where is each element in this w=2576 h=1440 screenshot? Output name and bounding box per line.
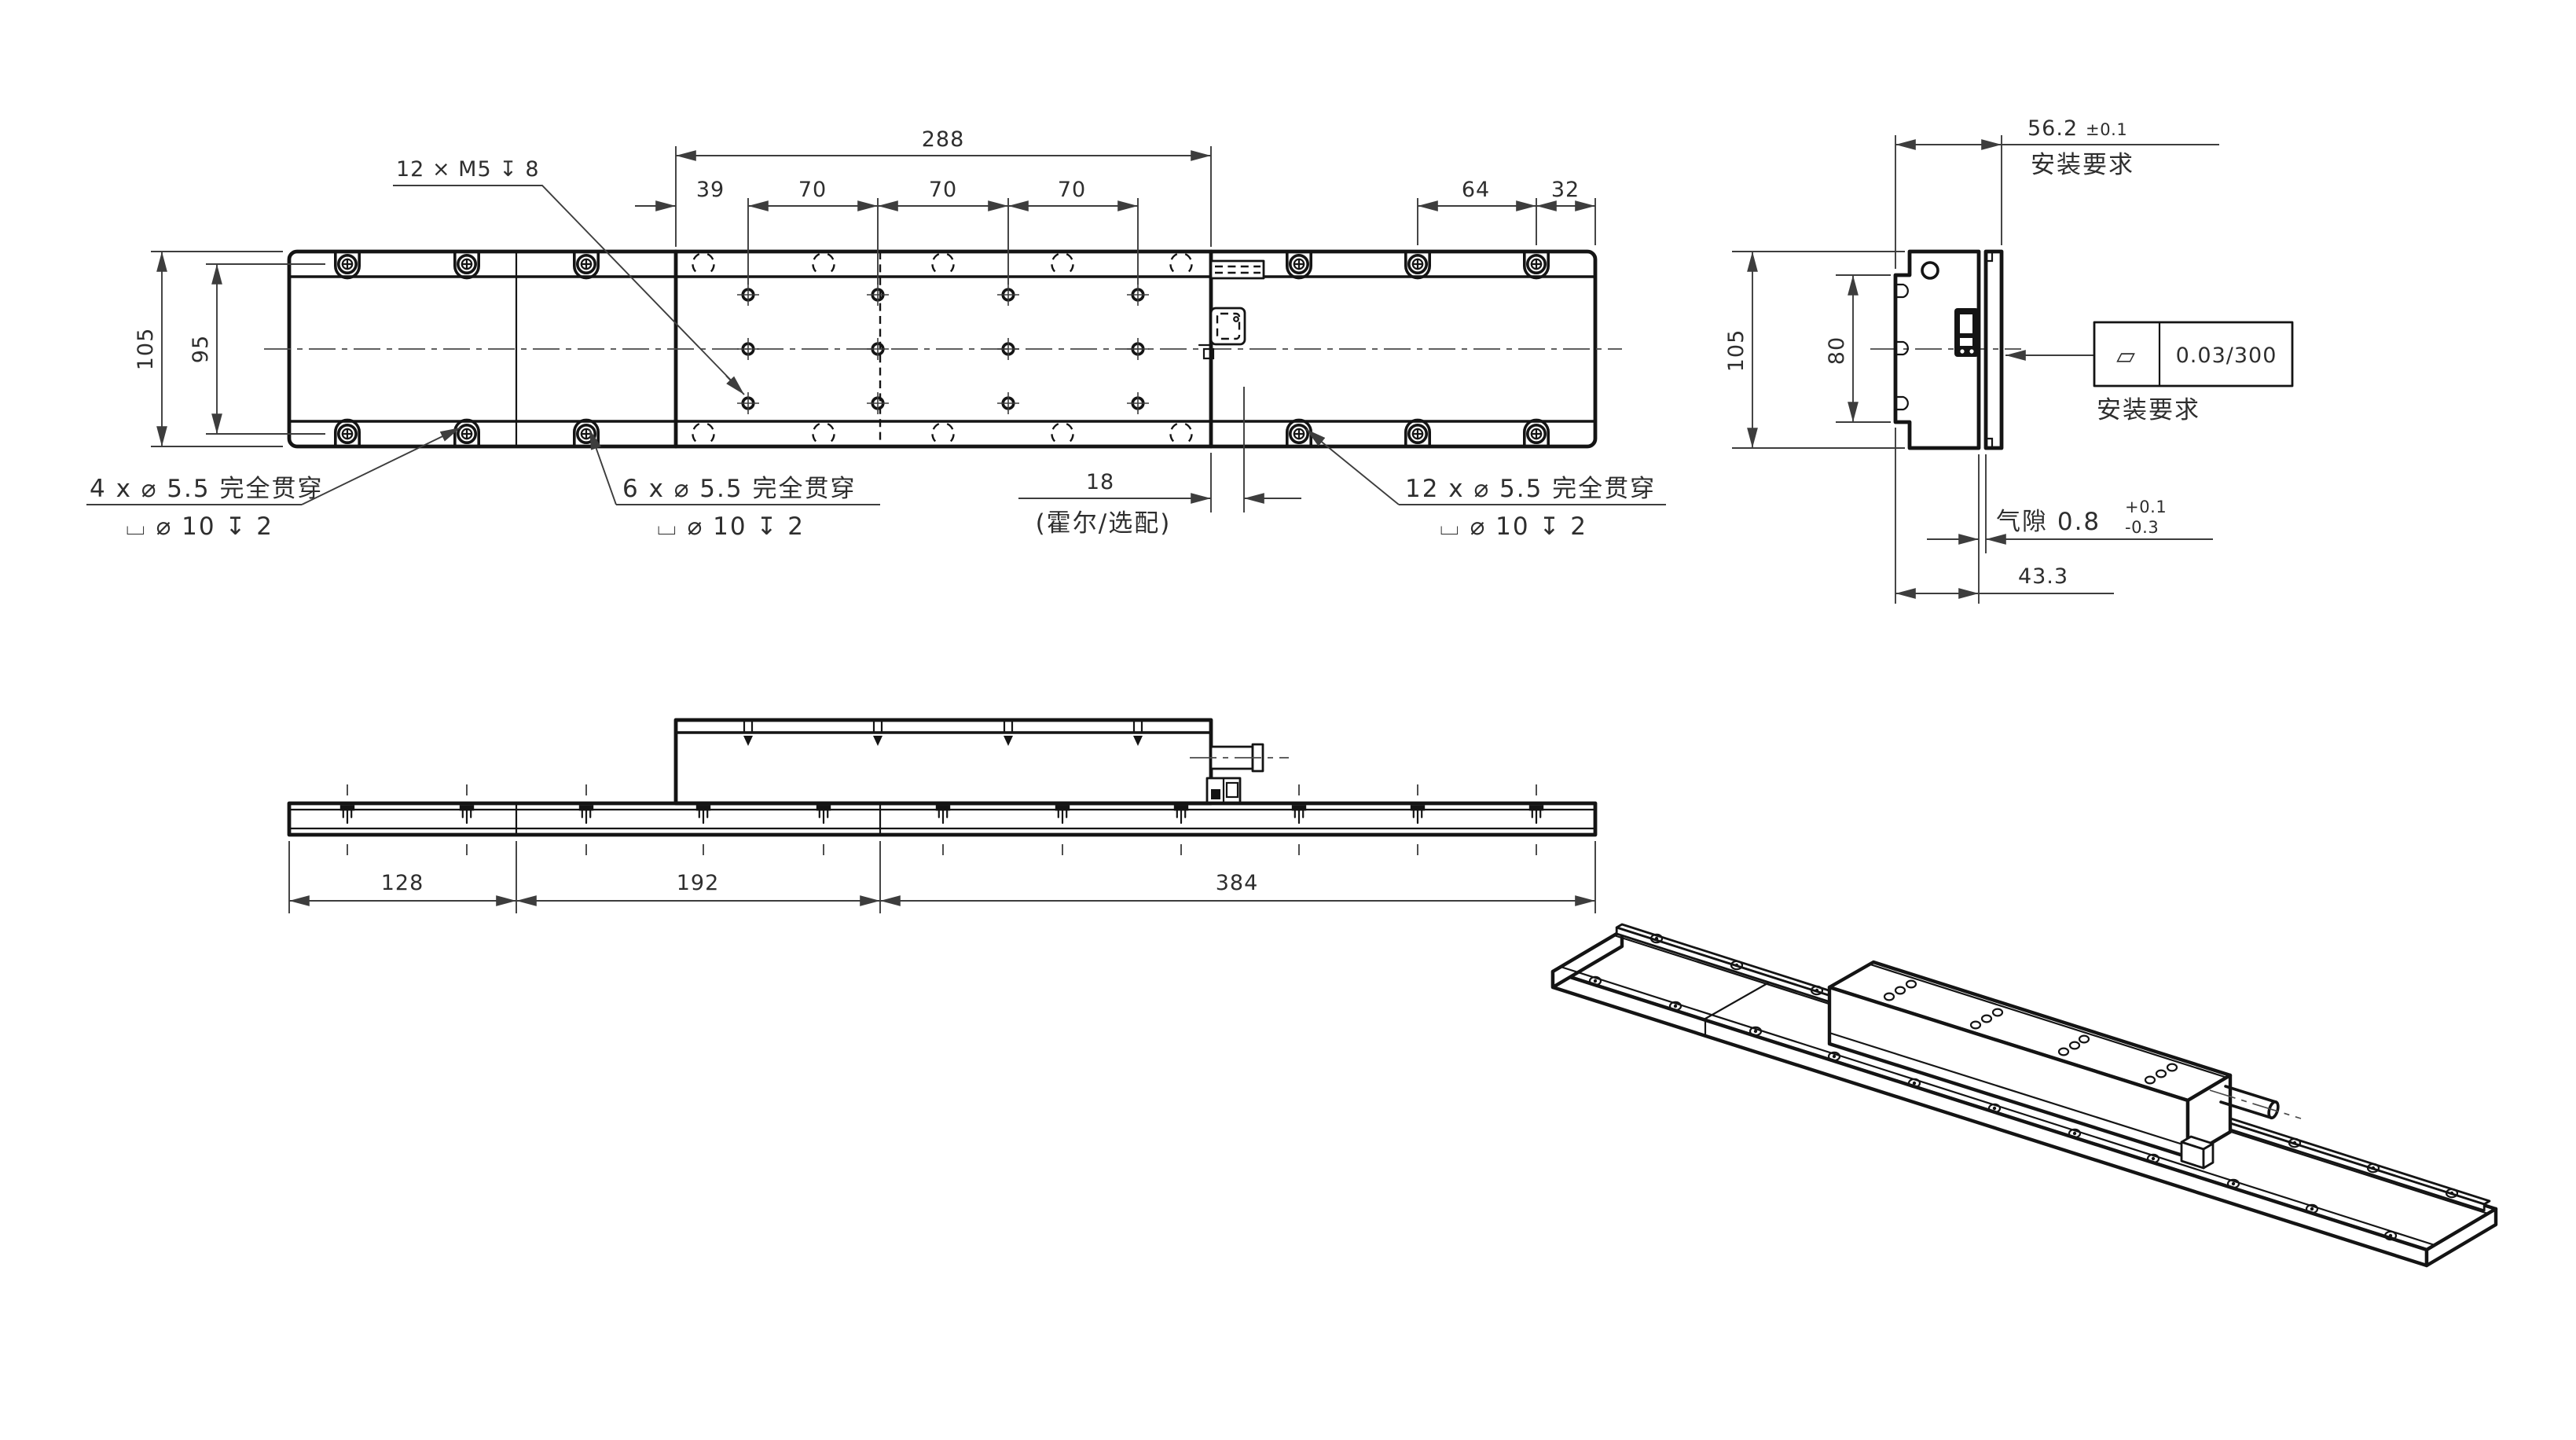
- carriage-end-hole: [1922, 263, 1938, 278]
- dim-hall-18: 18 (霍尔/选配): [1018, 387, 1301, 538]
- dim-airgap: 气隙 0.8 +0.1 -0.3: [1927, 454, 2213, 553]
- hall-sensor-front: [1207, 778, 1240, 803]
- dim-18-label: 18: [1086, 470, 1114, 494]
- dim-end-105-80: 105 80: [1724, 252, 1905, 448]
- dim-32-label: 32: [1551, 178, 1580, 202]
- mount-note-side: 安装要求: [2097, 396, 2200, 424]
- callout-12x-line2: ⌴ ⌀ 10 ↧ 2: [1440, 512, 1587, 541]
- callout-12x-line1: 12 x ⌀ 5.5 完全贯穿: [1405, 475, 1656, 503]
- dim-70a-label: 70: [798, 178, 827, 202]
- end-connector: [1954, 308, 1979, 357]
- rail-front-screws: [340, 784, 1543, 855]
- end-view: 56.2 ±0.1 安装要求 105 80 ▱ 0.03/300 安装要求: [1724, 116, 2292, 604]
- hall-sensor-plan: [1199, 308, 1245, 358]
- dim-105-95: 105 95: [134, 252, 325, 446]
- flatness-frame: ▱ 0.03/300 安装要求: [2005, 322, 2292, 424]
- callout-4x-line1: 4 x ⌀ 5.5 完全贯穿: [90, 475, 323, 503]
- callout-4x-line2: ⌴ ⌀ 10 ↧ 2: [126, 512, 273, 541]
- dim-105-label: 105: [134, 328, 158, 371]
- dim-64-32: 64 32: [1418, 178, 1595, 245]
- iso-hall-cube: [2182, 1137, 2213, 1168]
- dim-384-label: 384: [1216, 871, 1259, 895]
- cable-connector-plan: [1211, 261, 1264, 278]
- top-view: 12 × M5 ↧ 8 288 39 70 70 70: [86, 127, 1666, 541]
- dim-56-2-label: 56.2: [2027, 116, 2078, 141]
- dim-70b-label: 70: [929, 178, 957, 202]
- airgap-label: 气隙 0.8: [1996, 508, 2101, 536]
- front-view: 128 192 384: [289, 720, 1595, 913]
- hall-note-label: (霍尔/选配): [1036, 509, 1172, 538]
- dim-192-label: 192: [677, 871, 720, 895]
- cable-connector-front: [1190, 744, 1289, 771]
- dim-43-3-label: 43.3: [2018, 564, 2068, 589]
- dim-end-80-label: 80: [1825, 336, 1849, 365]
- dim-128-label: 128: [381, 871, 424, 895]
- dim-95-label: 95: [189, 335, 213, 363]
- mount-note-top: 安装要求: [2031, 151, 2134, 179]
- dim-56-2: 56.2 ±0.1 安装要求: [1895, 116, 2219, 269]
- callout-6x-line1: 6 x ⌀ 5.5 完全贯穿: [622, 475, 856, 503]
- dim-56-2-tol: ±0.1: [2086, 120, 2127, 139]
- flatness-symbol: ▱: [2116, 342, 2137, 370]
- isometric-view: [1553, 924, 2496, 1266]
- thread-callout-label: 12 × M5 ↧ 8: [396, 157, 540, 182]
- dim-39-label: 39: [696, 178, 725, 202]
- cad-drawing-page: 12 × M5 ↧ 8 288 39 70 70 70: [0, 0, 2576, 1440]
- dim-70c-label: 70: [1058, 178, 1086, 202]
- linear-stage-drawing: 12 × M5 ↧ 8 288 39 70 70 70: [0, 0, 2576, 1440]
- flatness-value: 0.03/300: [2176, 343, 2277, 368]
- dim-64-label: 64: [1462, 178, 1490, 202]
- dim-hole-chain: 39 70 70 70: [635, 178, 1138, 285]
- dim-288-label: 288: [922, 127, 965, 152]
- dim-end-105-label: 105: [1724, 329, 1749, 373]
- stator-plate: [1986, 252, 2002, 448]
- airgap-tol-minus: -0.3: [2125, 518, 2159, 537]
- airgap-tol-plus: +0.1: [2125, 498, 2167, 516]
- callout-6x-line2: ⌴ ⌀ 10 ↧ 2: [657, 512, 805, 541]
- dim-rail-segments: 128 192 384: [289, 841, 1595, 913]
